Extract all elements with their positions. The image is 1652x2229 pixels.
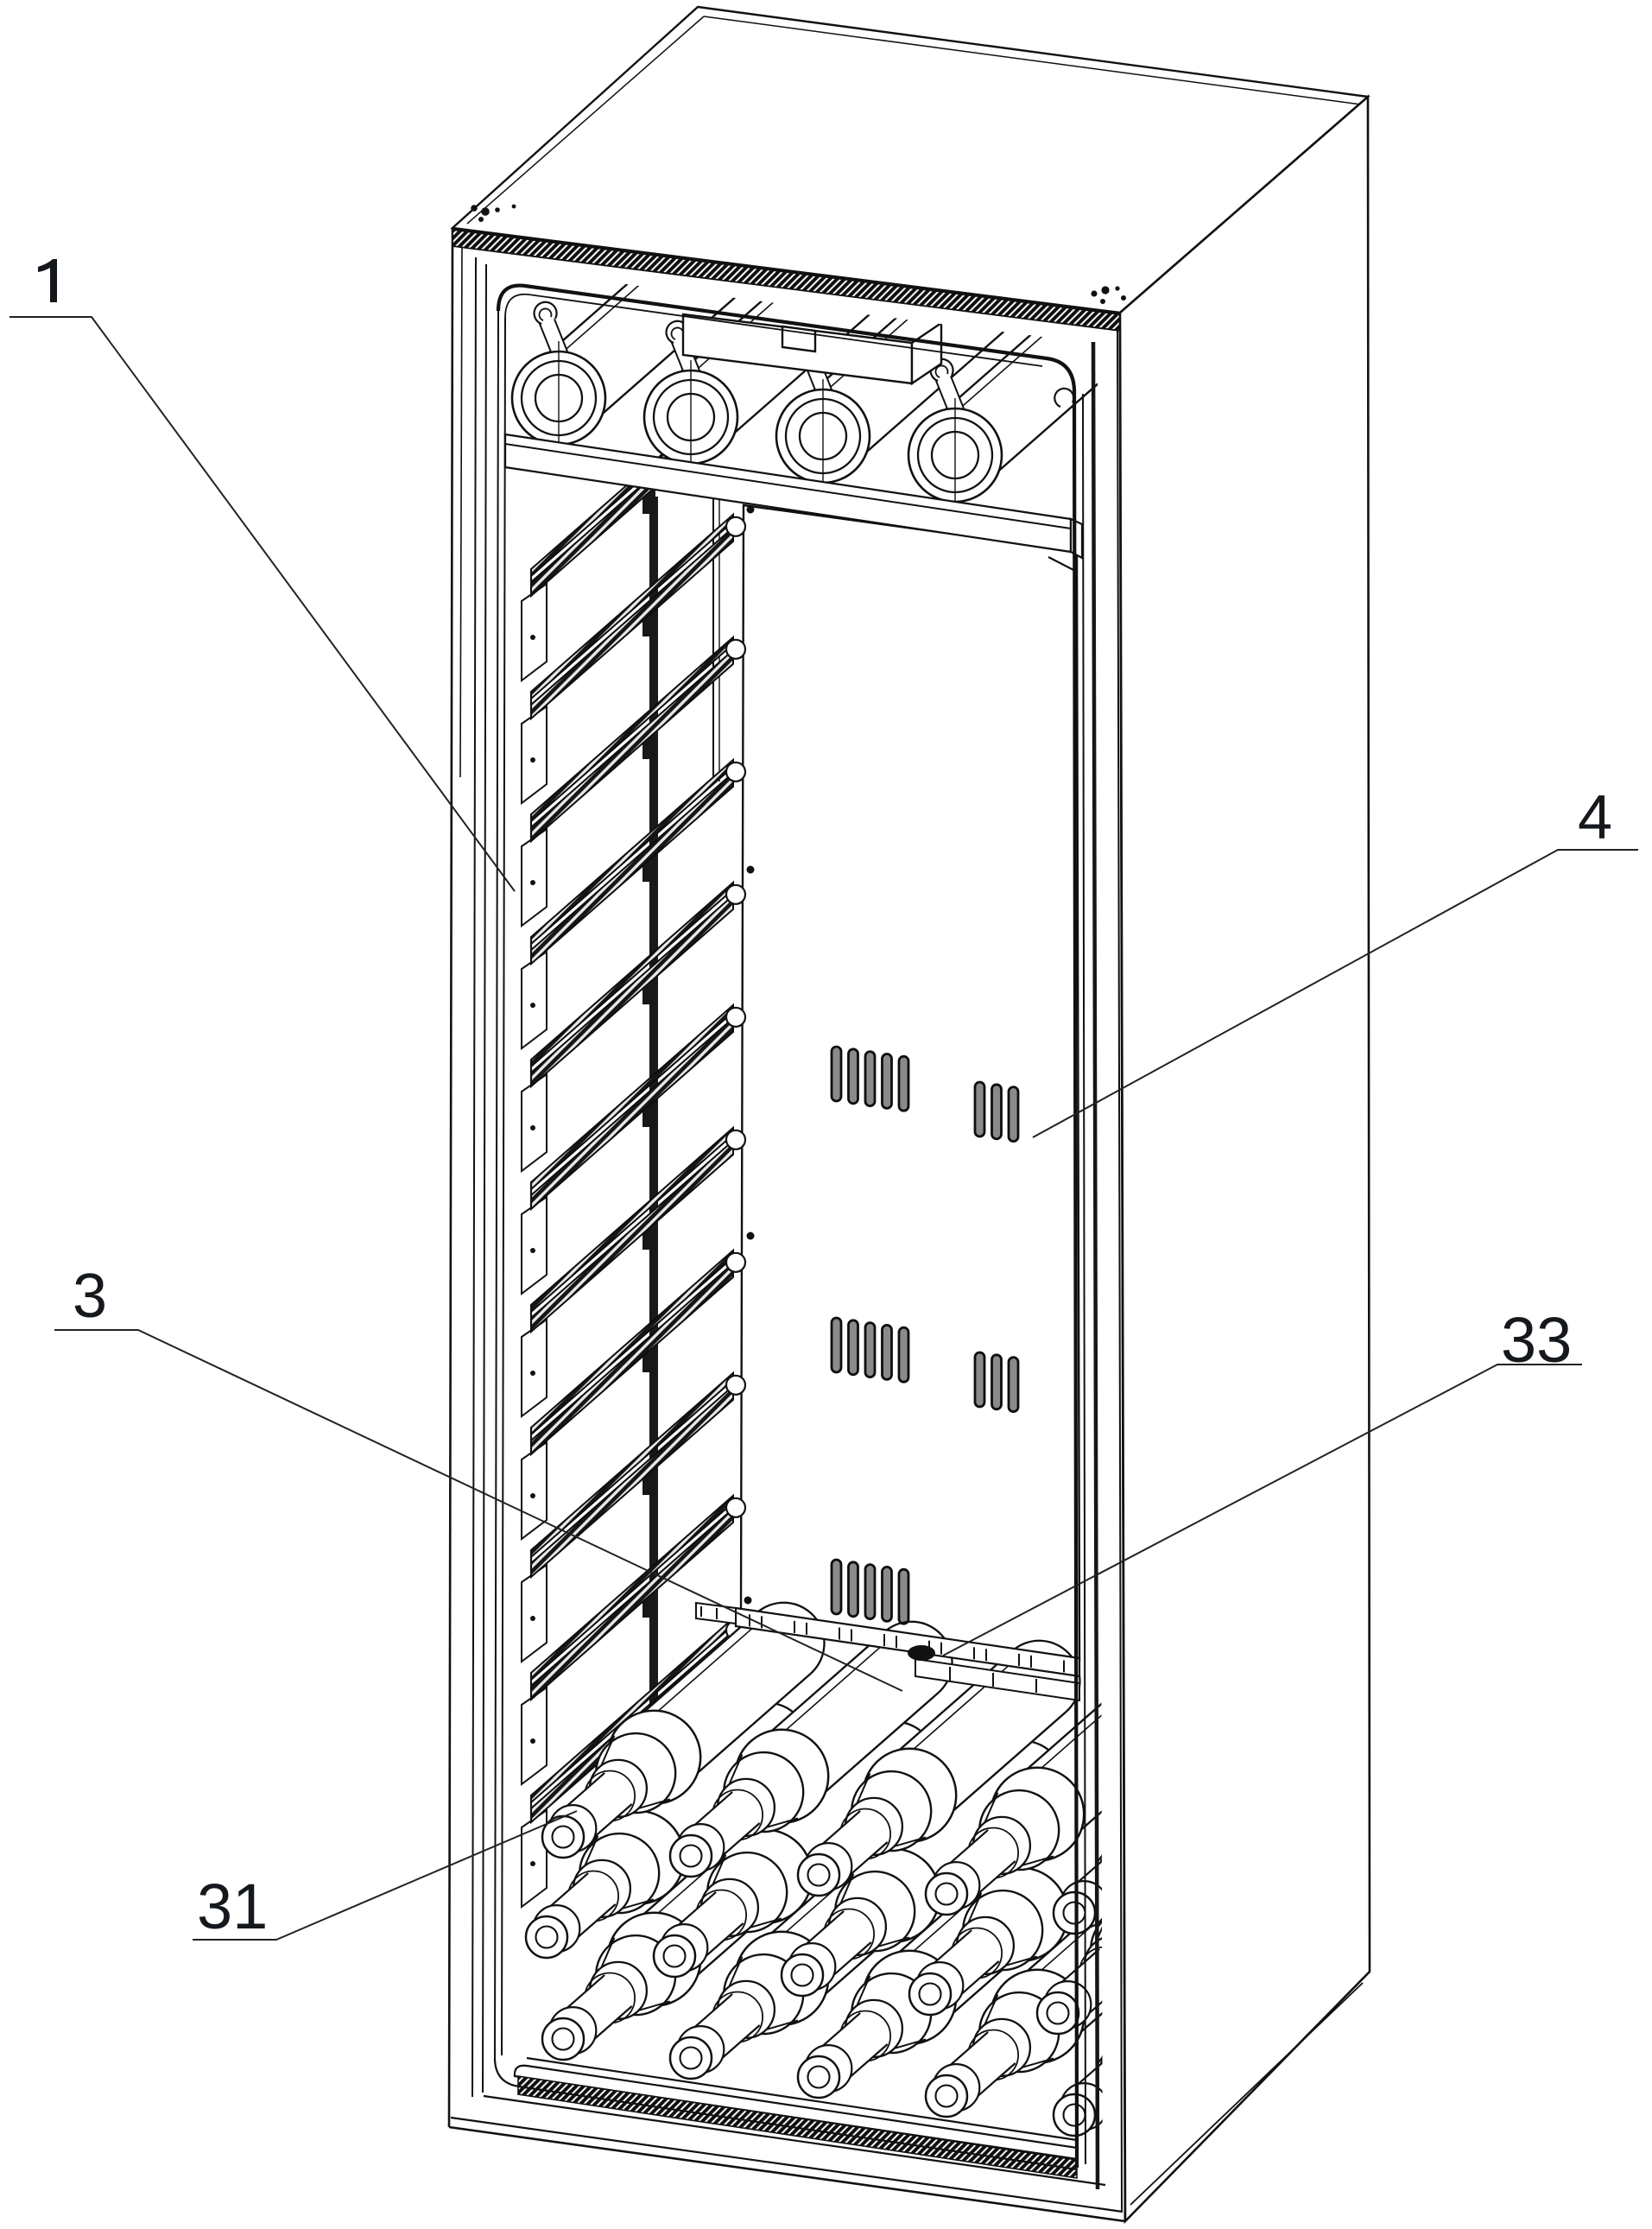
svg-text:3: 3 <box>73 1262 107 1331</box>
svg-text:4: 4 <box>1578 783 1612 852</box>
svg-text:31: 31 <box>197 1871 268 1942</box>
